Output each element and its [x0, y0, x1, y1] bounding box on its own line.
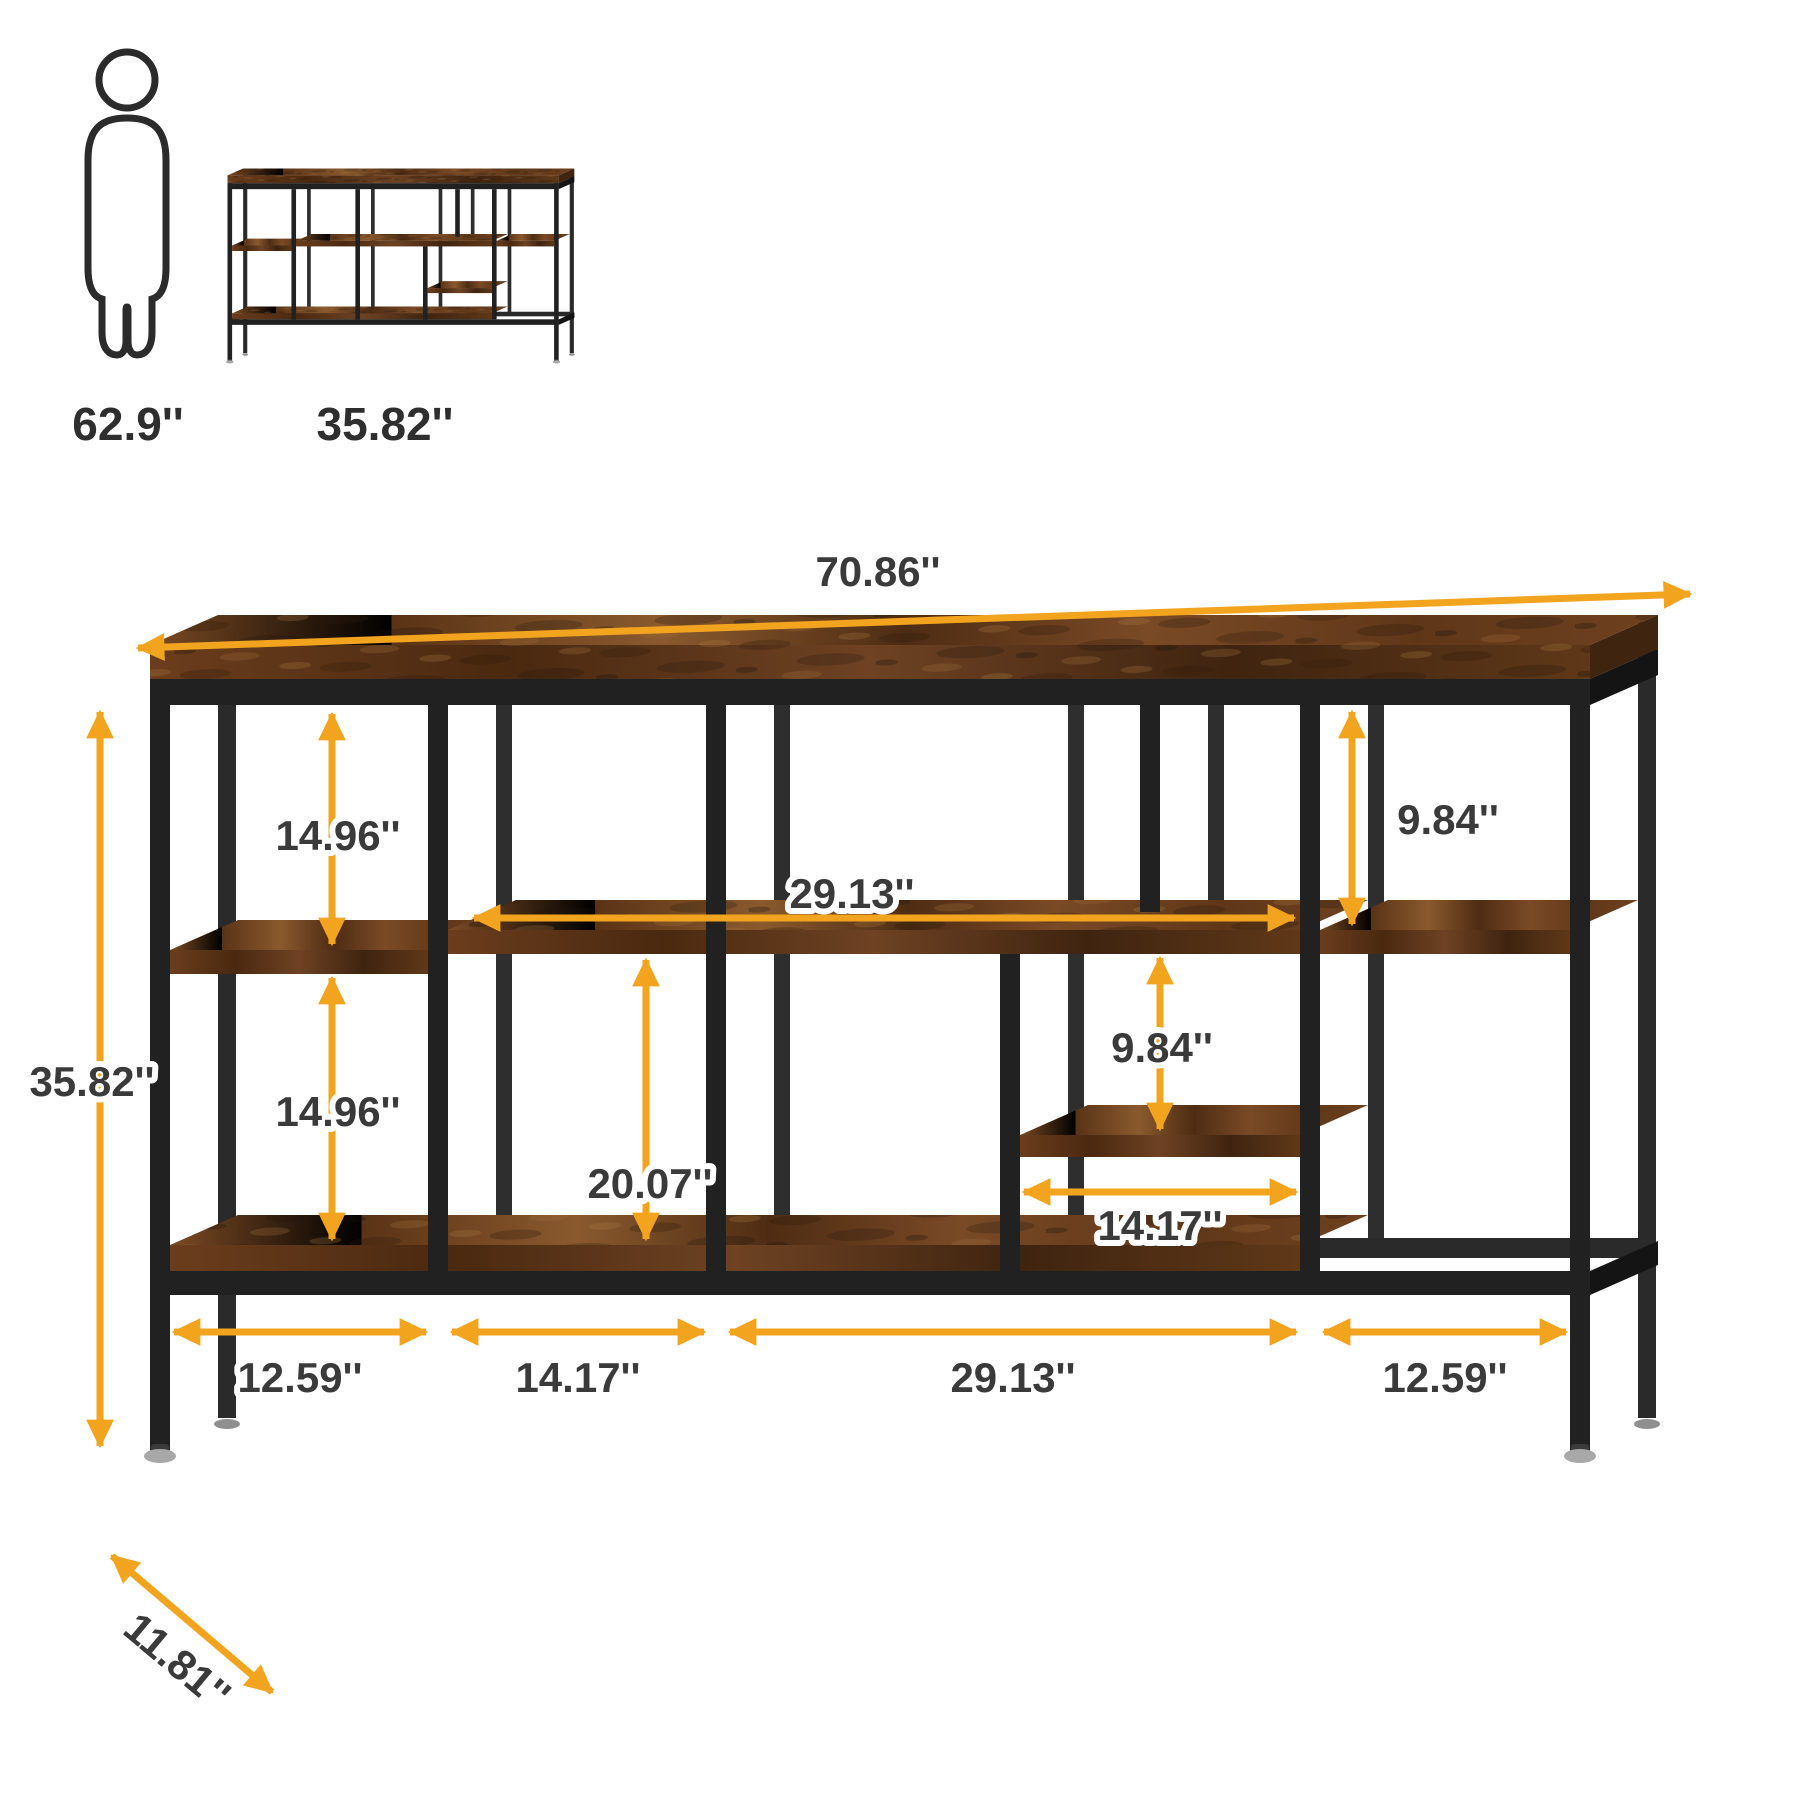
scale-reference: 62.9'' 35.82'' — [72, 52, 575, 450]
dim-label-total-height: 35.82'' — [29, 1058, 154, 1105]
dim-label-top-to-upper-shelf: 9.84'' — [1397, 796, 1499, 843]
person-height-label: 62.9'' — [72, 398, 183, 450]
dim-label-bottom-section-mid-left: 14.17'' — [515, 1354, 640, 1401]
person-icon — [88, 52, 166, 355]
product-height-label: 35.82'' — [317, 398, 454, 450]
dim-label-depth: 11.81'' — [115, 1603, 239, 1718]
dim-label-total-width: 70.86'' — [815, 548, 940, 595]
dim-label-upper-to-middle-shelf: 9.84'' — [1111, 1024, 1213, 1071]
dim-label-top-to-left-shelf: 14.96'' — [275, 812, 400, 859]
dim-label-upper-to-bottom-shelf: 20.07'' — [587, 1160, 712, 1207]
dim-label-bottom-section-mid-right: 29.13'' — [950, 1354, 1075, 1401]
product-thumbnail — [226, 168, 575, 363]
diagram-canvas: 62.9'' 35.82'' 70.86'' 35.82'' 11.81'' 1… — [0, 0, 1800, 1800]
dim-label-bottom-section-right: 12.59'' — [1382, 1354, 1507, 1401]
dim-label-bottom-section-left: 12.59'' — [237, 1354, 362, 1401]
main-product-view — [144, 615, 1660, 1463]
dim-label-middle-shelf-width: 14.17'' — [1097, 1202, 1222, 1249]
dim-label-upper-shelf-width: 29.13'' — [789, 870, 914, 917]
dim-label-left-shelf-to-bottom: 14.96'' — [275, 1088, 400, 1135]
dimension-annotations: 70.86'' 35.82'' 11.81'' 14.96'' 14.96'' … — [29, 548, 1690, 1718]
product-dimension-diagram: 62.9'' 35.82'' 70.86'' 35.82'' 11.81'' 1… — [0, 0, 1800, 1800]
